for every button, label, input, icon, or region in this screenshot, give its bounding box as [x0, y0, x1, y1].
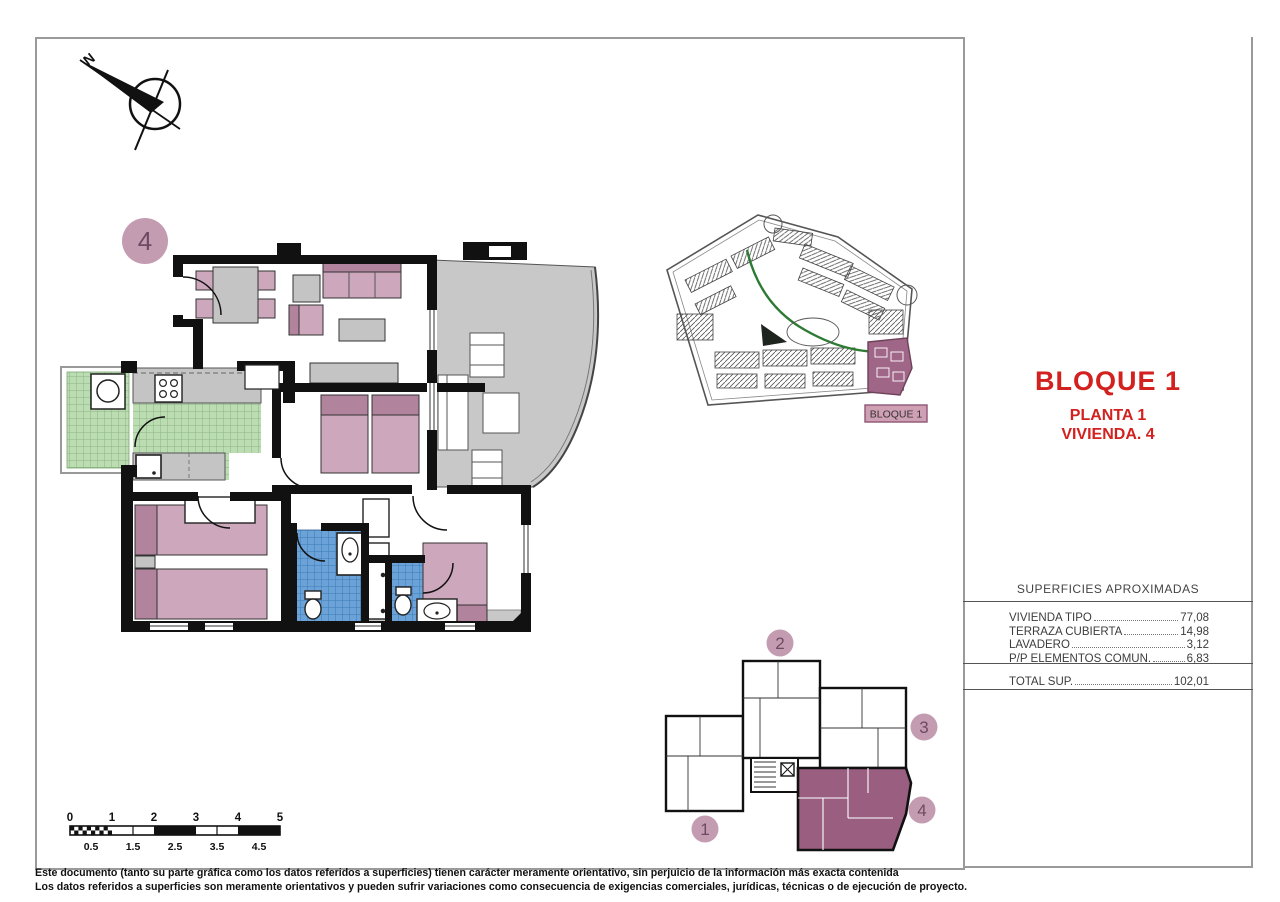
dotted-leader	[1072, 647, 1185, 648]
park-trees	[761, 324, 787, 346]
dining-set	[196, 267, 275, 323]
unit-badge: 4	[122, 218, 168, 264]
row-label: LAVADERO	[1009, 639, 1070, 653]
disclaimer-line-2: Los datos referidos a superficies son me…	[35, 881, 1260, 895]
unit2-number: 2	[775, 634, 784, 653]
table-row: VIVIENDA TIPO 77,08	[1009, 612, 1209, 626]
dotted-leader	[1075, 684, 1172, 685]
surfaces-title: SUPERFICIES APROXIMADAS	[963, 582, 1253, 596]
unit1-number: 1	[700, 820, 709, 839]
svg-text:0.5: 0.5	[84, 841, 99, 853]
title-bloque: BLOQUE 1	[963, 366, 1253, 397]
disclaimer: Este documento (tanto su parte gráfica c…	[35, 867, 1260, 894]
svg-text:3.5: 3.5	[210, 841, 225, 853]
north-compass: N	[58, 42, 188, 157]
row-label: P/P ELEMENTOS COMUN.	[1009, 653, 1151, 667]
title-planta: PLANTA 1	[963, 406, 1253, 425]
central-pond	[787, 318, 839, 346]
dotted-leader	[1094, 620, 1178, 621]
disclaimer-line-1: Este documento (tanto su parte gráfica c…	[35, 867, 1260, 881]
svg-text:1.5: 1.5	[126, 841, 141, 853]
bedroom2-beds	[321, 395, 419, 473]
bloque1-label-box: BLOQUE 1	[865, 405, 927, 422]
scale-top-labels: 0 1 2 3 4 5	[67, 812, 284, 824]
row-label: TERRAZA CUBIERTA	[1009, 626, 1122, 640]
svg-text:1: 1	[109, 812, 116, 824]
lavadero	[61, 367, 135, 473]
table-row: P/P ELEMENTOS COMUN. 6,83	[1009, 653, 1209, 667]
svg-text:3: 3	[193, 812, 199, 824]
unit-badge-number: 4	[138, 226, 152, 256]
surfaces-table: SUPERFICIES APROXIMADAS VIVIENDA TIPO 77…	[963, 582, 1253, 690]
row-value: 6,83	[1187, 653, 1209, 667]
site-plan: BLOQUE 1	[655, 192, 935, 434]
title-vivienda: VIVIENDA. 4	[963, 425, 1253, 444]
kitchen-sink-icon	[136, 455, 161, 478]
bloque1-highlight	[868, 338, 912, 395]
svg-text:5: 5	[277, 812, 284, 824]
bloque1-label: BLOQUE 1	[870, 409, 923, 421]
svg-text:2: 2	[151, 812, 157, 824]
svg-text:4.5: 4.5	[252, 841, 267, 853]
dotted-leader	[1124, 634, 1178, 635]
stair-core	[751, 758, 798, 792]
table-total-row: TOTAL SUP. 102,01	[1009, 676, 1209, 690]
key-plan: 2 3 4 1	[648, 628, 948, 863]
key-unit-2	[743, 661, 820, 758]
compass-icon	[80, 60, 180, 150]
table-row: LAVADERO 3,12	[1009, 639, 1209, 653]
key-unit-4-highlighted	[798, 768, 911, 850]
svg-text:0: 0	[67, 812, 73, 824]
dotted-leader	[1153, 661, 1185, 662]
main-floor-plan: 4	[55, 215, 605, 665]
info-panel-frame	[963, 37, 1253, 868]
north-label: N	[80, 50, 98, 69]
row-value: 14,98	[1180, 626, 1209, 640]
stove-icon	[155, 375, 182, 402]
scale-bar: 0 1 2 3 4 5 0.5 1.5 2.5 3.5 4.5	[58, 808, 298, 860]
svg-text:2.5: 2.5	[168, 841, 183, 853]
row-value: 77,08	[1180, 612, 1209, 626]
total-label: TOTAL SUP.	[1009, 676, 1073, 690]
unit3-number: 3	[919, 718, 928, 737]
washing-machine-icon	[91, 374, 125, 409]
unit4-number: 4	[917, 801, 926, 820]
table-row: TERRAZA CUBIERTA 14,98	[1009, 626, 1209, 640]
total-value: 102,01	[1174, 676, 1209, 690]
svg-text:4: 4	[235, 812, 242, 824]
row-value: 3,12	[1187, 639, 1209, 653]
terrace	[432, 260, 598, 490]
living-room-furniture	[289, 262, 401, 383]
title-block: BLOQUE 1 PLANTA 1 VIVIENDA. 4	[963, 366, 1253, 444]
scale-bottom-labels: 0.5 1.5 2.5 3.5 4.5	[84, 841, 267, 853]
row-label: VIVIENDA TIPO	[1009, 612, 1092, 626]
kitchen	[133, 368, 261, 480]
key-unit-1	[666, 716, 743, 811]
scale-bar-graphic	[70, 826, 280, 835]
